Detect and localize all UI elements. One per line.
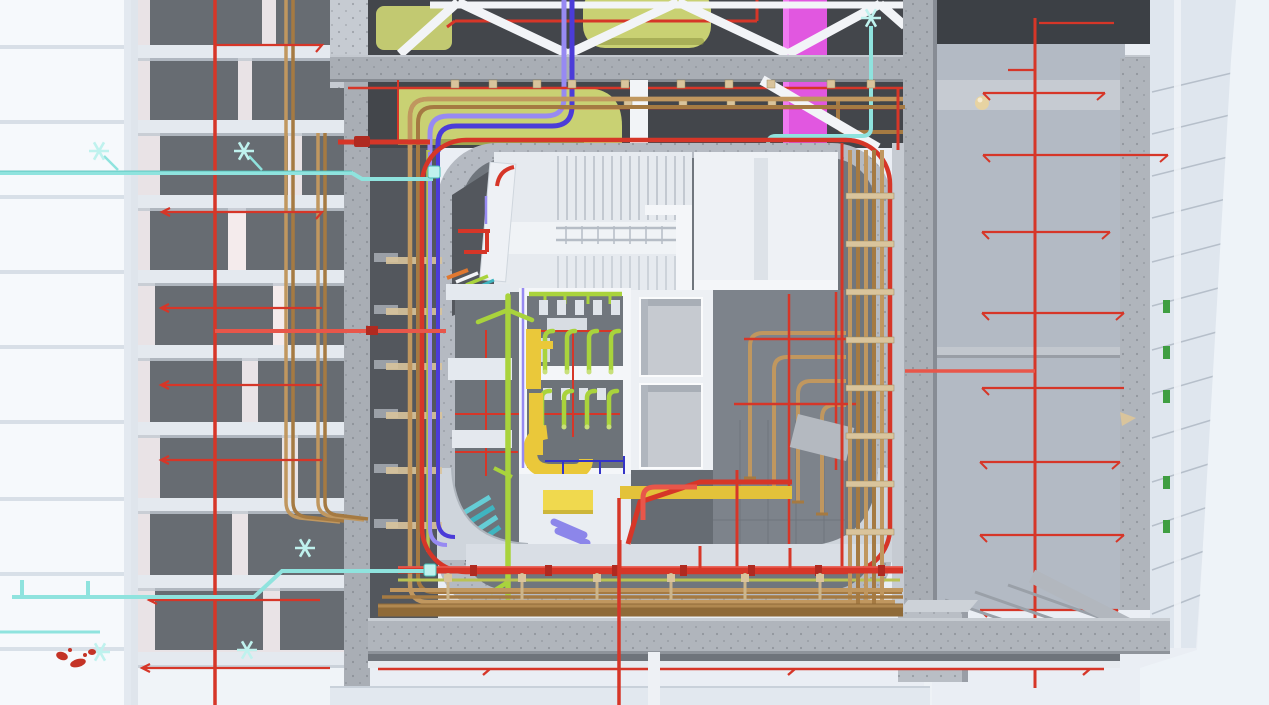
yellow-duct-riser-1: [526, 329, 541, 389]
stair-treads-lower: [558, 256, 684, 290]
left-facade: [0, 0, 140, 705]
corridor-bridge-1: [448, 358, 512, 380]
elevator-cab-1: [640, 298, 702, 376]
pipe-coupling: [354, 136, 370, 147]
elevator-lobby: [694, 152, 838, 292]
right-concrete-frame: [898, 0, 1269, 705]
bim-3d-viewport: [0, 0, 1269, 705]
elevator-cab-2: [640, 384, 702, 468]
stairwell: [494, 152, 692, 292]
bim-scene: [0, 0, 1269, 705]
corridor-bridge-2: [452, 430, 512, 448]
core-bottom-slab: [466, 544, 880, 568]
white-mullion-bottom: [648, 652, 660, 705]
building-core: [338, 88, 905, 616]
